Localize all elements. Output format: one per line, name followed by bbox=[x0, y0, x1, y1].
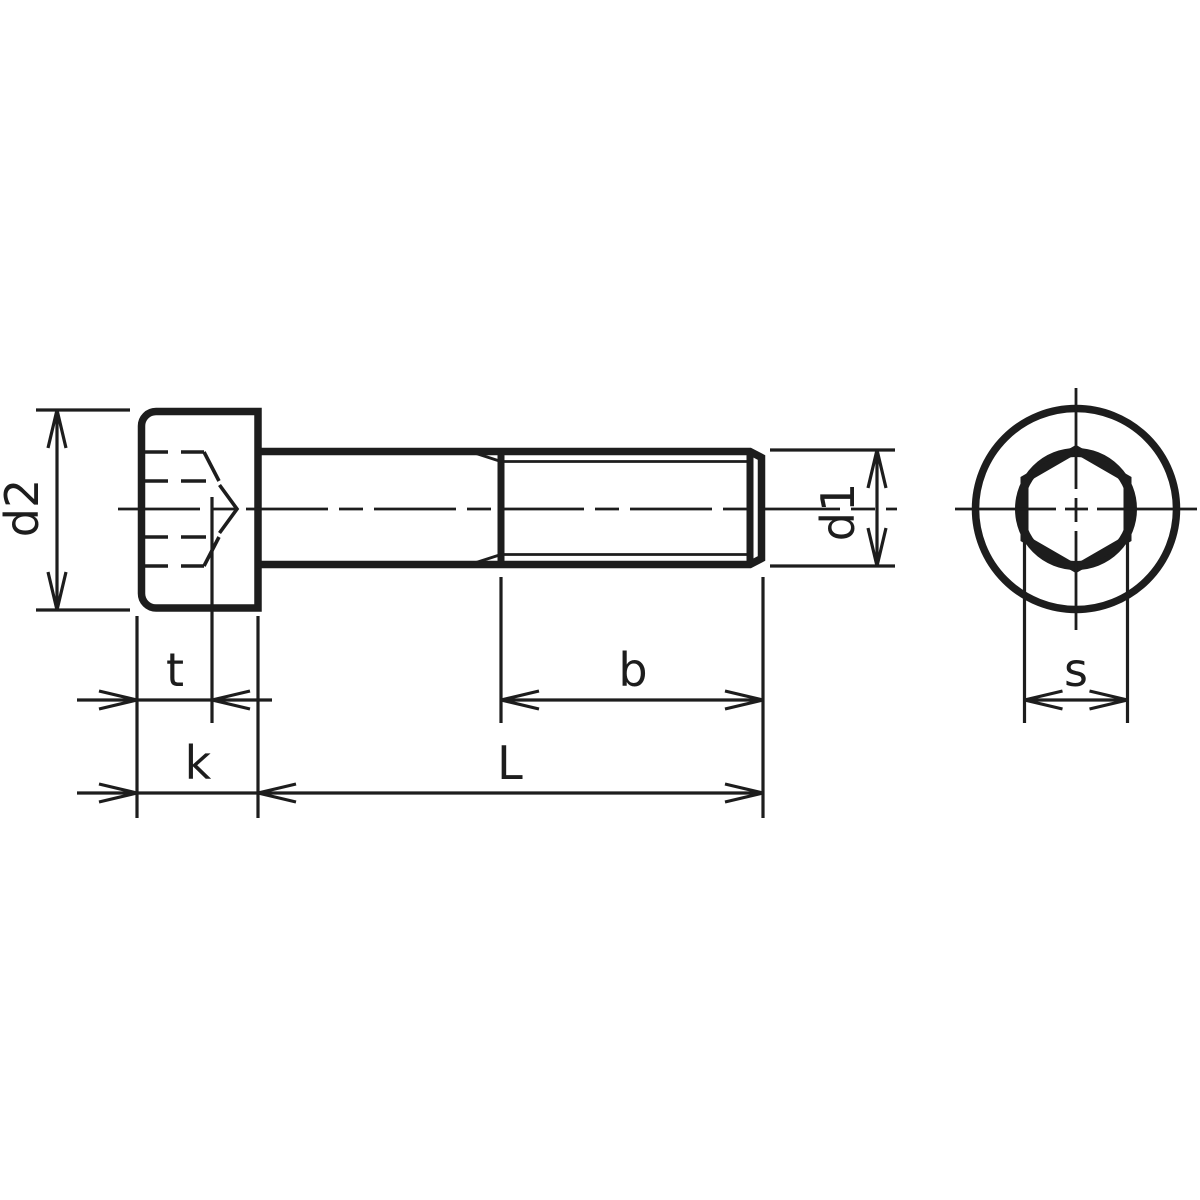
t-label: t bbox=[166, 643, 184, 697]
b-label: b bbox=[618, 643, 647, 697]
end-view: s bbox=[955, 388, 1197, 723]
screw-technical-drawing: d2 d1 t bbox=[0, 0, 1200, 1200]
dimension-b: b bbox=[501, 643, 763, 709]
s-label: s bbox=[1064, 643, 1088, 697]
dimension-t: t bbox=[77, 643, 272, 709]
dimension-k: k bbox=[77, 736, 763, 802]
technical-drawing-page: d2 d1 t bbox=[0, 0, 1200, 1200]
d2-label: d2 bbox=[0, 479, 49, 537]
socket-bottom-taper-top bbox=[204, 452, 219, 481]
d1-label: d1 bbox=[811, 483, 865, 541]
L-label: L bbox=[497, 736, 523, 790]
dimension-d2: d2 bbox=[0, 410, 130, 610]
end-view-center-lines bbox=[955, 388, 1197, 630]
k-label: k bbox=[185, 736, 212, 790]
front-view: d2 d1 t bbox=[0, 410, 897, 818]
